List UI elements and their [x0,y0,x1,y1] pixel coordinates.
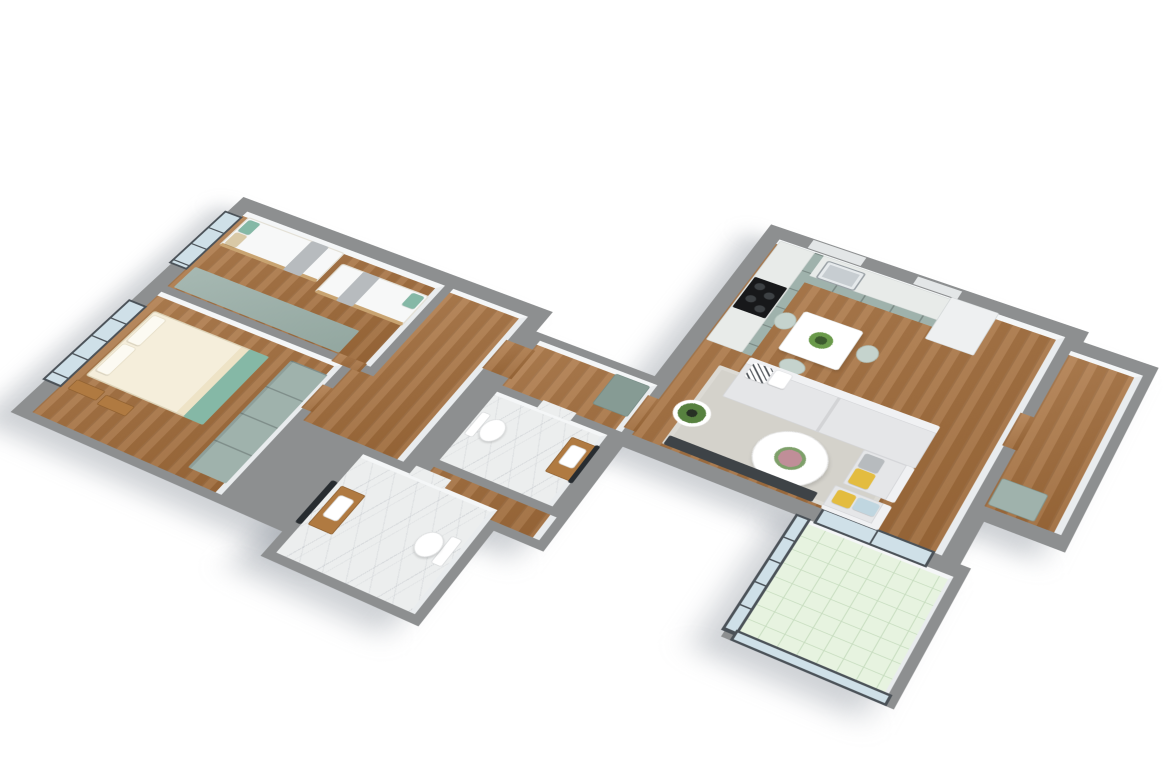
floorplan-render [0,0,1170,780]
apartment-floorplan [0,75,1170,780]
